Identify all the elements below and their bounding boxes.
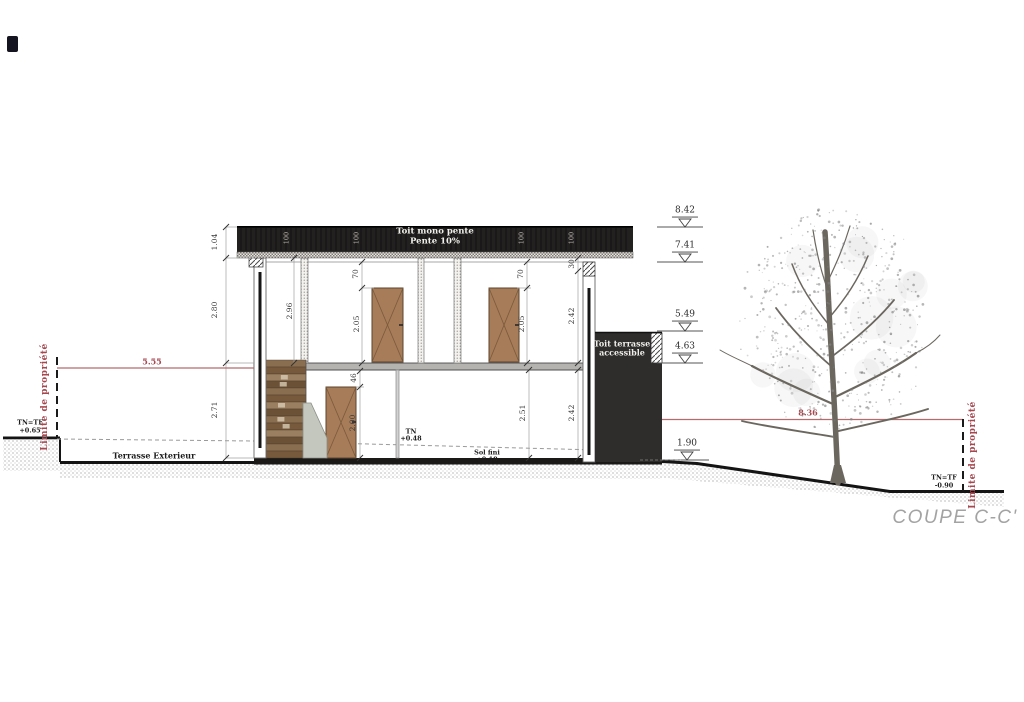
parapet [651,333,662,363]
interior-wall [396,370,399,458]
dim-upper-floor-height: 2.80 [211,302,219,319]
upper-door-1 [372,288,403,362]
level-549: 5.49 [672,311,698,322]
upper-door-2 [489,288,519,362]
roof-label-line1: Toit mono pente [396,227,473,236]
tn-elev: +0.48 [400,435,421,442]
terrace-label: Terrasse Exterieur [113,452,196,461]
interior-wall [301,258,308,363]
red-dim-right: 8.36 [798,409,817,418]
level-741: 7.41 [672,242,698,253]
interior-wall [454,258,461,363]
dim-door-height: 2.05 [518,316,526,333]
stair-lower-flight [303,403,327,458]
left-glazing [249,258,266,458]
section-drawing [0,0,1024,702]
dim-door-head: 70 [517,269,525,279]
roof-mark: 100 [353,232,360,244]
level-markers [657,219,709,460]
level-463: 4.63 [672,343,698,354]
dim-roof-edge: 30 [568,259,576,269]
staircase [266,360,327,458]
dim-ground-floor-height: 2.71 [211,402,219,419]
dim-stair-bay-height: 2.96 [286,303,294,320]
boundary-left-label: Limite de propriété [41,343,51,450]
red-dim-left: 5.55 [142,358,161,367]
interior-wall [418,258,424,363]
right-glazing [583,262,595,462]
dim-door-head: 70 [352,269,360,279]
roof-mark: 100 [283,232,290,244]
level-842: 8.42 [672,207,698,218]
ground-hatch-left [3,438,60,471]
dim-gf-height-right: 2.42 [568,405,576,422]
terrace-ground-hatch [60,463,254,478]
boundary-left-elev: +0.65 [19,427,40,434]
section-drawing-sheet: Toit mono pente Pente 10% 100 100 100 10… [0,0,1024,702]
drawing-title: COUPE C-C' [892,507,1017,529]
ground-hatch-under-building [254,464,662,479]
roof-mark: 100 [568,232,575,244]
dim-door-height: 2.05 [353,316,361,333]
roof-edge-beam [583,262,595,276]
boundary-right-elev: -0.90 [935,482,954,489]
dim-roof-thickness: 1.04 [211,234,219,251]
dim-gf-door-height: 2.00 [349,415,357,432]
dim-gf-door-head: 46 [350,373,358,383]
sol-elev: +0.18 [476,456,497,463]
dim-gf-height-mid: 2.51 [519,405,527,422]
roof-terrace-label-line2: accessible [599,349,645,358]
level-190: 1.90 [674,440,700,451]
roof-label-line2: Pente 10% [410,237,460,246]
roof-mark: 100 [518,232,525,244]
ground-profile [3,437,1004,508]
dim-upper-right-height: 2.42 [568,308,576,325]
tree [720,208,940,483]
corner-artifact [7,36,18,52]
boundary-right-label: Limite de propriété [969,401,979,508]
